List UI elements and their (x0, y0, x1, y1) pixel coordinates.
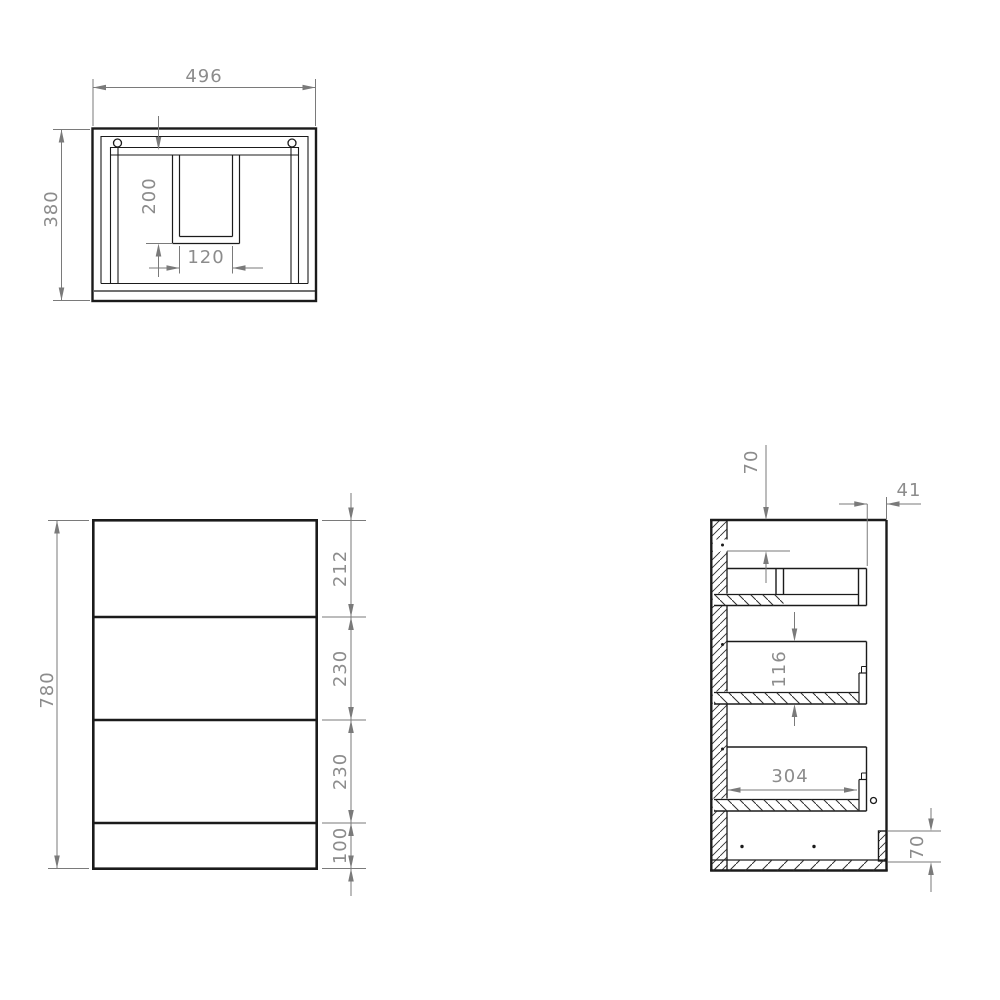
dim-label-plan-depth: 380 (41, 190, 62, 227)
dim-label-side-top-clearance: 70 (741, 450, 762, 475)
dim-label-plan-cutout-width: 120 (187, 247, 224, 268)
dim-label-side-plinth-height: 70 (907, 835, 928, 860)
dim-label-side-drawer-length: 304 (771, 766, 808, 787)
dim-label-side-front-inset: 41 (897, 480, 922, 501)
dim-label-plan-cutout-depth: 200 (139, 177, 160, 214)
front-view-geometry (93, 520, 316, 868)
plinth-front-section (879, 831, 887, 861)
cabinet-outline-plan (93, 129, 317, 302)
dim-side-drawer-length (728, 787, 858, 793)
plan-view: 496 380 200 120 (41, 66, 316, 301)
fixing-hole (871, 798, 877, 804)
drawing-sheet: 496 380 200 120 (0, 0, 1000, 1000)
dim-label-front-segment-4: 100 (330, 827, 351, 864)
side-section-view: 70 41 116 304 (710, 445, 941, 892)
plan-view-geometry (93, 129, 317, 302)
dim-label-plan-width: 496 (185, 66, 222, 87)
dim-side-front-inset (839, 497, 921, 566)
bottom-panel-hatch (712, 860, 887, 871)
front-view: 780 212 230 230 100 (37, 493, 366, 896)
plan-cutout (173, 155, 240, 244)
dim-label-front-segment-3: 230 (330, 753, 351, 790)
dim-label-side-drawer-depth: 116 (769, 650, 790, 687)
cad-drawing-canvas: 496 380 200 120 (0, 0, 1000, 1000)
dim-label-front-segment-1: 212 (330, 550, 351, 587)
dim-label-front-segment-2: 230 (330, 650, 351, 687)
fixing-ring-right (288, 139, 296, 147)
cabinet-outline-front (93, 520, 316, 868)
drawer-1-bottom-hatch (714, 595, 784, 606)
dim-side-drawer-depth (792, 612, 798, 726)
fixing-ring-left (114, 139, 122, 147)
dim-label-front-height: 780 (37, 671, 58, 708)
drawer-2-bottom-hatch (714, 693, 859, 705)
drawer-3-bottom-hatch (714, 800, 859, 812)
